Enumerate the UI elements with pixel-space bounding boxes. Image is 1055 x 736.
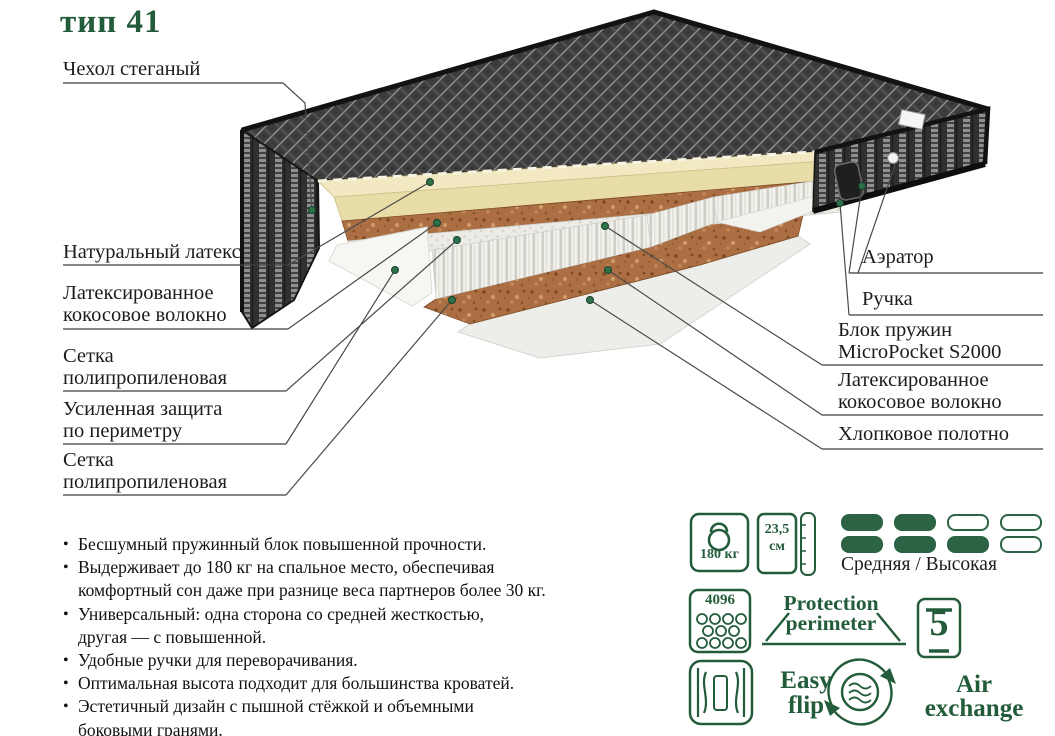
page-title: тип 41 <box>60 4 162 41</box>
weight-value: 180 кг <box>691 547 748 563</box>
firmness-row <box>841 514 1051 531</box>
zones-value: 5 <box>918 603 960 643</box>
firmness-pill-empty <box>1000 514 1042 531</box>
label-aerator: Аэратор <box>862 247 1055 269</box>
firmness-pill-empty <box>947 514 989 531</box>
easy-flip-label: Easy flip <box>754 668 858 718</box>
firmness-pill-empty <box>1000 536 1042 553</box>
label-spring-block: Блок пружин MicroPocket S2000 <box>838 320 1053 363</box>
label-coco-lower: Латексированное кокосовое волокно <box>838 370 1053 413</box>
feature-bullet-list: Бесшумный пружинный блок повышенной проч… <box>63 533 633 736</box>
label-mesh-lower: Сетка полипропиленовая <box>63 450 298 493</box>
firmness-scale <box>841 514 1051 558</box>
label-latex: Натуральный латекс <box>63 242 298 264</box>
label-mesh-upper: Сетка полипропиленовая <box>63 346 298 389</box>
label-perimeter: Усиленная защита по периметру <box>63 399 298 442</box>
label-handle: Ручка <box>862 289 1055 311</box>
bullet-item: Бесшумный пружинный блок повышенной проч… <box>63 533 633 556</box>
bullet-item: Оптимальная высота подходит для большинс… <box>63 672 633 695</box>
springs-count: 4096 <box>690 592 750 609</box>
label-cover: Чехол стеганый <box>63 59 298 81</box>
infographic-canvas: тип 41 Чехол стеганый Натуральный латекс… <box>0 0 1055 736</box>
firmness-row <box>841 536 1051 553</box>
firmness-pill-filled <box>894 514 936 531</box>
height-value: 23,5 см <box>758 521 796 555</box>
bullet-item: Эстетичный дизайн с пышной стёжкой и объ… <box>63 695 633 736</box>
bullet-item: Выдерживает до 180 кг на спальное место,… <box>63 556 633 602</box>
aerator-vent <box>888 153 899 164</box>
firmness-pill-filled <box>894 536 936 553</box>
bullet-item: Удобные ручки для переворачивания. <box>63 649 633 672</box>
label-cotton: Хлопковое полотно <box>838 424 1053 446</box>
label-coco-upper: Латексированное кокосовое волокно <box>63 283 298 326</box>
firmness-pill-filled <box>841 536 883 553</box>
bullet-item: Универсальный: одна сторона со средней ж… <box>63 603 633 649</box>
protection-perimeter-label: Protection perimeter <box>768 593 894 633</box>
firmness-pill-filled <box>841 514 883 531</box>
air-exchange-label: Air exchange <box>898 673 1050 721</box>
firmness-label: Средняя / Высокая <box>841 554 1055 576</box>
easy-flip-icon <box>690 661 752 724</box>
firmness-pill-filled <box>947 536 989 553</box>
